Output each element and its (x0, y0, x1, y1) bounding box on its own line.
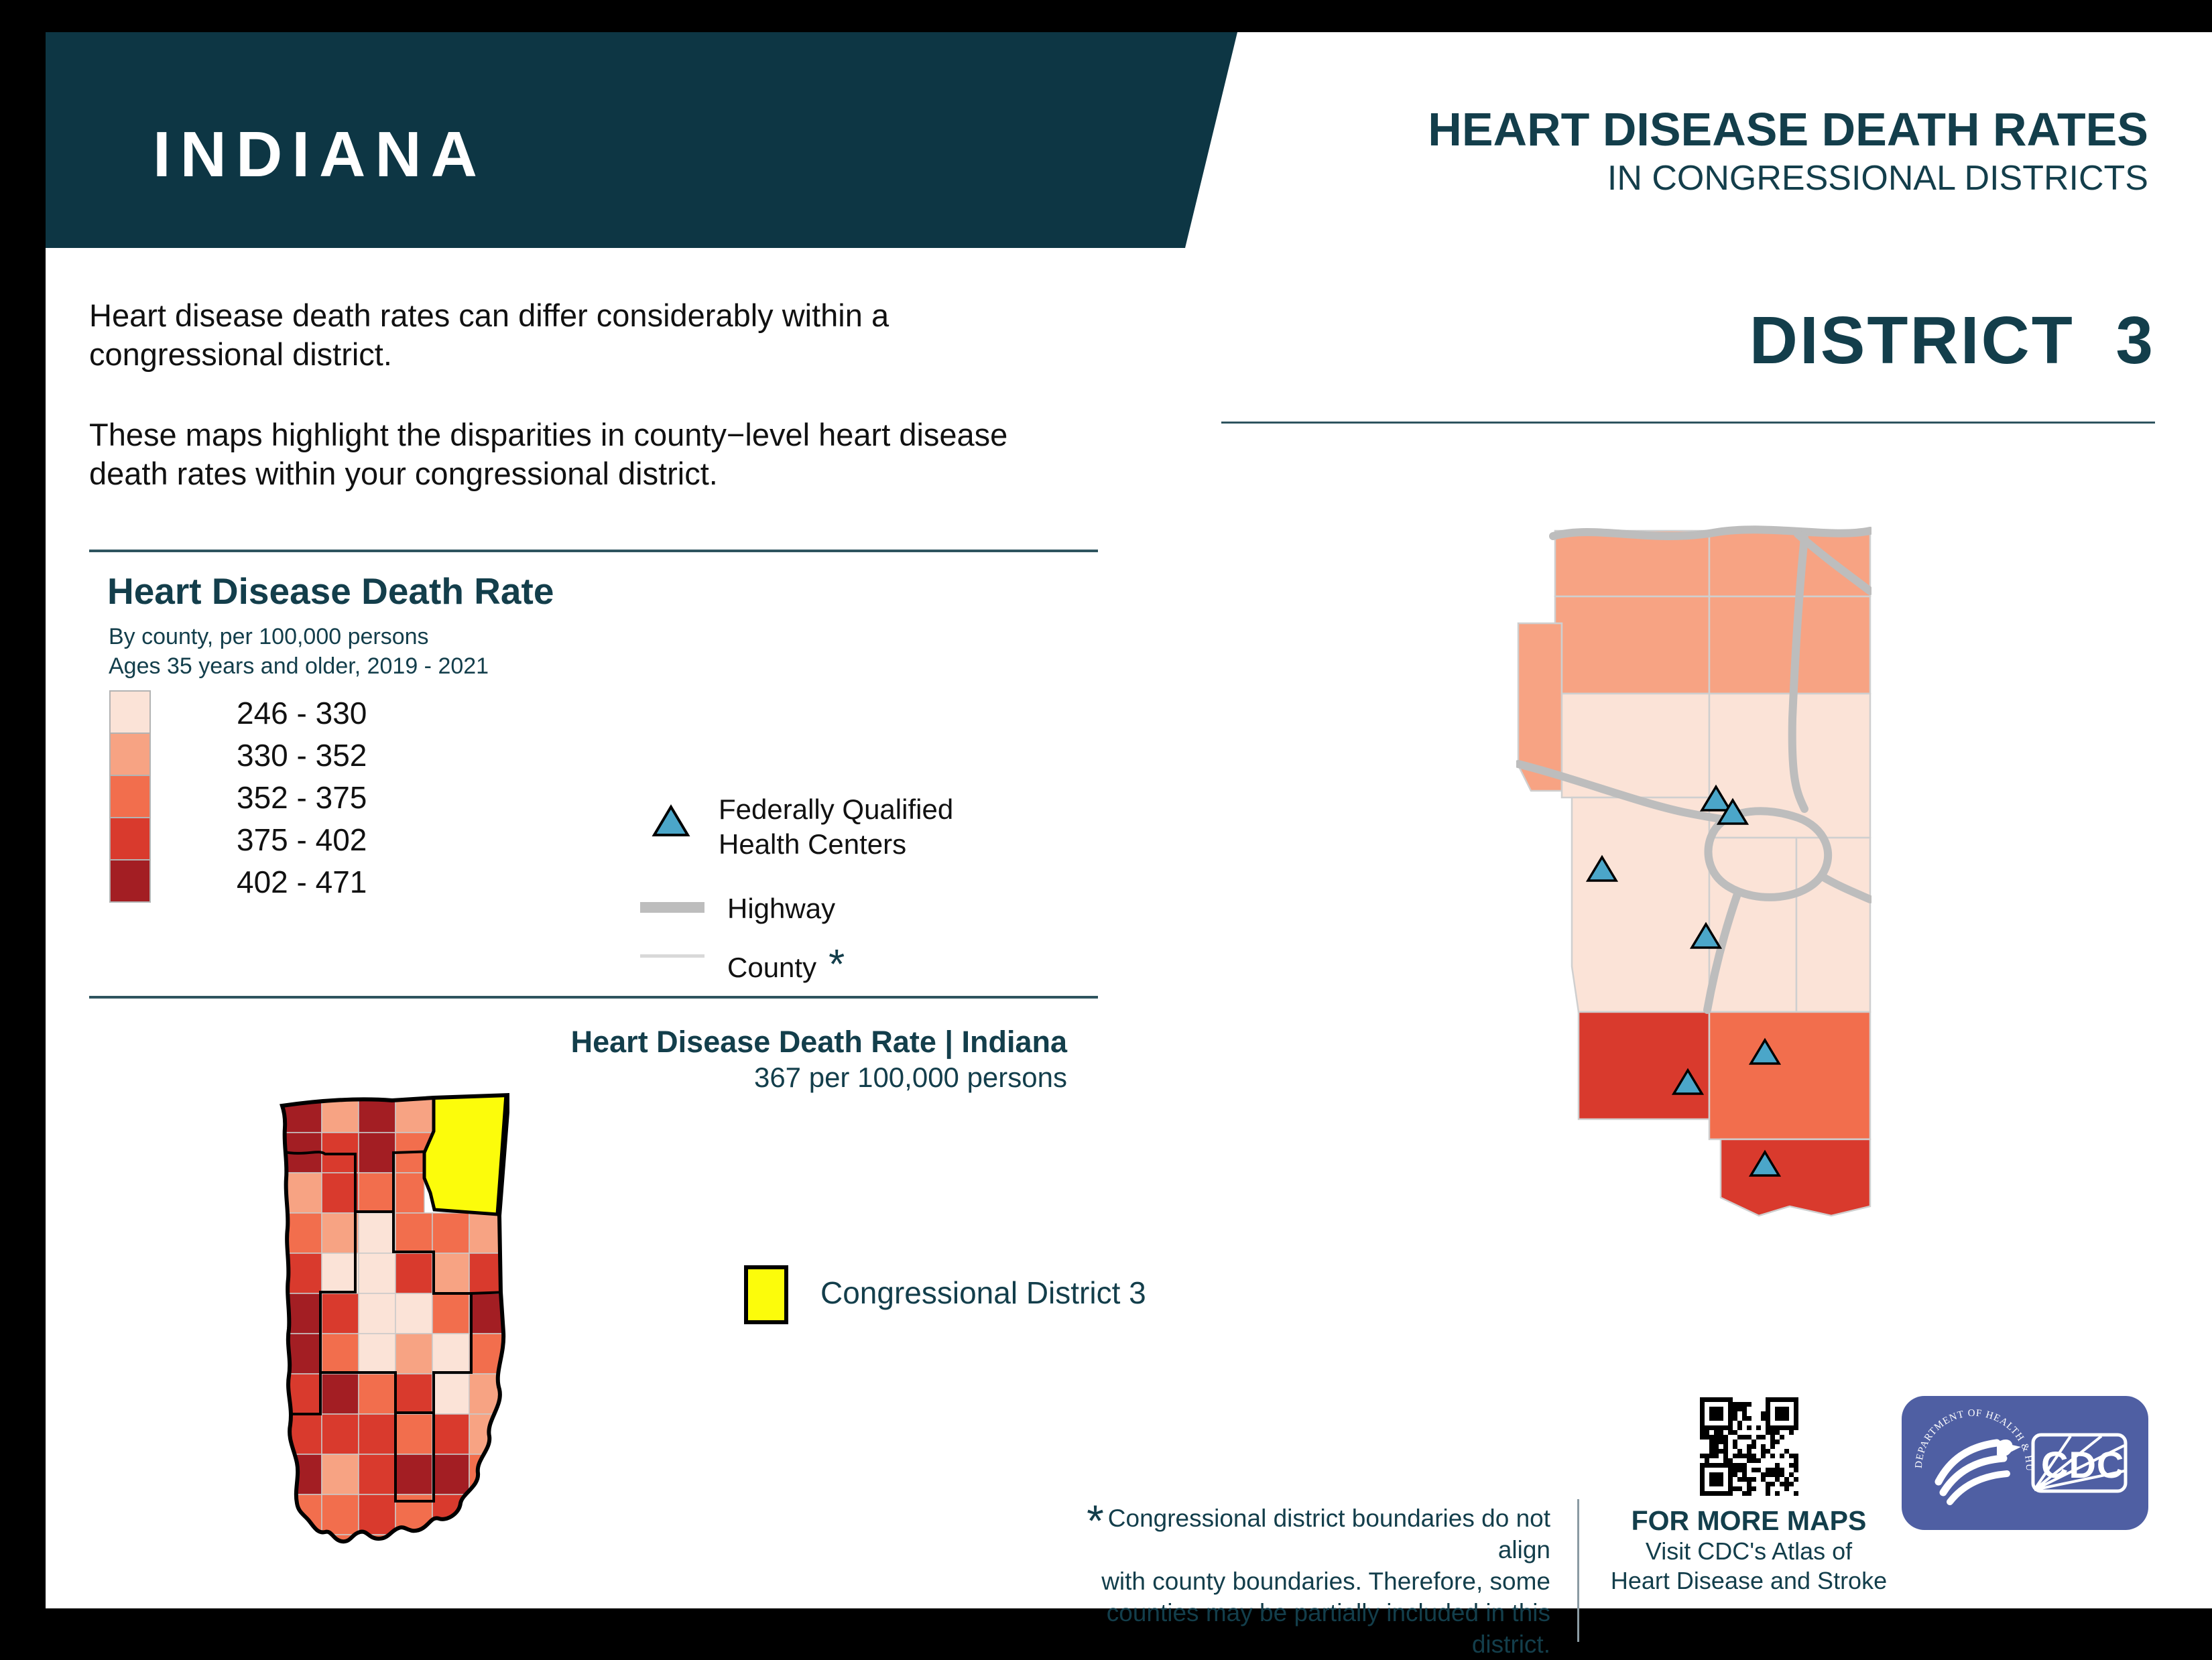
legend-class-row: 402 - 471 (109, 860, 367, 903)
legend-class-row: 375 - 402 (109, 818, 367, 860)
legend-class-label: 375 - 402 (237, 822, 367, 858)
state-rate-title: Heart Disease Death Rate | Indiana (571, 1024, 1067, 1060)
intro-paragraph-2: These maps highlight the disparities in … (89, 416, 1014, 493)
legend-class-swatch (109, 690, 151, 734)
legend-class-swatch (109, 775, 151, 818)
hhs-arc-text: DEPARTMENT OF HEALTH & HUMAN SERVICES - … (1902, 1396, 2034, 1472)
legend-subtitle-line1: By county, per 100,000 persons (109, 622, 489, 651)
state-name: INDIANA (153, 118, 487, 192)
district3-map (1516, 497, 1871, 1218)
intro-text: Heart disease death rates can differ con… (89, 296, 1014, 535)
header-title-block: HEART DISEASE DEATH RATES IN CONGRESSION… (1428, 102, 2148, 200)
cdc-box: CDC (2033, 1435, 2126, 1491)
highway-line-icon (640, 902, 704, 913)
divider (89, 996, 1098, 999)
highway-label: Highway (727, 893, 835, 925)
fqhc-label-text: Federally Qualified Health Centers (719, 792, 953, 862)
fqhc-triangle-icon (652, 804, 690, 838)
more-maps-block: FOR MORE MAPS Visit CDC's Atlas of Heart… (1608, 1397, 1890, 1596)
more-maps-title: FOR MORE MAPS (1608, 1505, 1890, 1537)
footnote-line3: counties may be partially included in th… (1041, 1597, 1550, 1660)
footnote: *Congressional district boundaries do no… (1041, 1496, 1550, 1660)
divider (1221, 422, 2155, 424)
hhs-cdc-logo: DEPARTMENT OF HEALTH & HUMAN SERVICES - … (1902, 1396, 2148, 1530)
legend-class-swatch (109, 859, 151, 903)
footnote-line1-text: Congressional district boundaries do not… (1108, 1505, 1550, 1563)
legend-class-swatch (109, 732, 151, 776)
county-line-icon (640, 954, 704, 958)
county-label: County* (727, 941, 845, 988)
footnote-line2: with county boundaries. Therefore, some (1041, 1566, 1550, 1597)
intro-paragraph-1: Heart disease death rates can differ con… (89, 296, 947, 374)
legend-subtitle: By county, per 100,000 persons Ages 35 y… (109, 622, 489, 681)
state-rate-block: Heart Disease Death Rate | Indiana 367 p… (571, 1024, 1067, 1095)
footnote-asterisk: * (1087, 1496, 1104, 1545)
legend-class-label: 402 - 471 (237, 864, 367, 900)
choropleth-legend: 246 - 330330 - 352352 - 375375 - 402402 … (109, 692, 367, 903)
hhs-eagle-icon (1939, 1440, 2021, 1502)
legend-title: Heart Disease Death Rate (107, 570, 554, 613)
legend-class-swatch (109, 817, 151, 860)
fqhc-label: Federally Qualified Health Centers (719, 792, 953, 862)
legend-class-row: 330 - 352 (109, 734, 367, 776)
indiana-state-map (278, 1091, 509, 1568)
district3-legend-label: Congressional District 3 (820, 1275, 1146, 1311)
page-title: HEART DISEASE DEATH RATES (1428, 102, 2148, 157)
footnote-line1: *Congressional district boundaries do no… (1041, 1496, 1550, 1566)
district3-legend-swatch (744, 1265, 788, 1324)
county-asterisk: * (828, 942, 845, 988)
legend-class-label: 352 - 375 (237, 779, 367, 816)
divider (89, 550, 1098, 552)
more-maps-line2: Heart Disease and Stroke (1608, 1566, 1890, 1596)
county-label-text: County (727, 952, 816, 983)
legend-subtitle-line2: Ages 35 years and older, 2019 - 2021 (109, 651, 489, 681)
legend-class-label: 330 - 352 (237, 737, 367, 773)
legend-class-label: 246 - 330 (237, 695, 367, 731)
legend-class-row: 352 - 375 (109, 776, 367, 818)
state-rate-value: 367 per 100,000 persons (571, 1060, 1067, 1095)
qr-code-icon (1700, 1397, 1798, 1496)
hhs-cdc-logo-art: DEPARTMENT OF HEALTH & HUMAN SERVICES - … (1902, 1396, 2148, 1530)
legend-class-row: 246 - 330 (109, 692, 367, 734)
cdc-letters: CDC (2041, 1444, 2124, 1486)
more-maps-line1: Visit CDC's Atlas of (1608, 1537, 1890, 1566)
page-subtitle: IN CONGRESSIONAL DISTRICTS (1428, 157, 2148, 200)
footer-divider (1577, 1499, 1579, 1642)
district-heading: DISTRICT 3 (1749, 303, 2155, 378)
